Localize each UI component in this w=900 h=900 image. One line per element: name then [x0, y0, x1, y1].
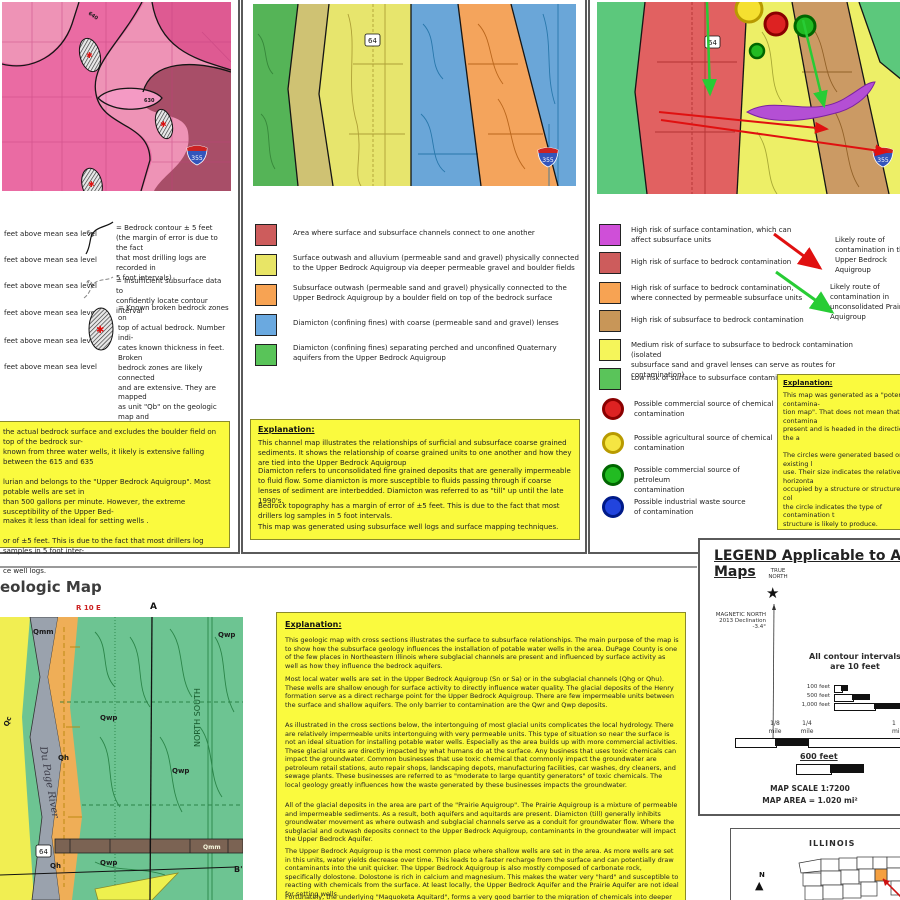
contour-interval-note: All contour intervals are 10 feet: [800, 652, 900, 673]
explanation-title: Explanation:: [258, 425, 315, 434]
map-area-label: MAP AREA = 1.020 mi²: [730, 796, 890, 805]
contamination-explanation-box: Explanation: This map was generated as a…: [777, 374, 900, 530]
bedrock-explanation-box: the actual bedrock surface and excludes …: [0, 421, 230, 548]
cross-section-marker-b: B': [234, 865, 243, 874]
legend-swatch: [599, 339, 621, 361]
north-arrow-icon: ▲: [755, 879, 763, 892]
map-label-road: NORTH SOUTH: [193, 688, 202, 747]
map-label-qwp: Qwp: [100, 714, 117, 722]
map-channel: 64 355: [253, 4, 576, 186]
map-label-qh: Qh: [50, 862, 61, 870]
legend-swatch: [255, 254, 277, 276]
svg-text:64: 64: [368, 37, 377, 45]
elevation-entry: feet above mean sea level: [4, 256, 97, 266]
explanation-paragraph: As illustrated in the cross sections bel…: [285, 721, 679, 790]
contour-label: 630: [144, 98, 155, 104]
route-64-shield: 64: [36, 845, 51, 857]
map-label-qwp: Qwp: [172, 767, 189, 775]
elevation-entry: feet above mean sea level: [4, 363, 97, 373]
panel-bedrock-topography: 640 630 ✱ ✱ ✱ 355 feet above mean sea le…: [0, 0, 240, 554]
explanation-title: Explanation:: [783, 379, 832, 387]
source-label: Possible commercial source of petroleum …: [634, 466, 774, 496]
panel-illinois-locator: ILLINOIS N ▲: [730, 828, 900, 900]
svg-text:64: 64: [39, 848, 48, 856]
explanation-paragraph: This map was generated using subsurface …: [258, 523, 573, 533]
legend-swatch: [255, 344, 277, 366]
explanation-paragraph: The Upper Bedrock Aquigroup is the most …: [285, 847, 679, 898]
route-64-shield: 64: [365, 34, 380, 46]
insufficient-data-symbol: 630: [82, 272, 114, 300]
map-label-qmm: Qmm: [203, 844, 221, 851]
bedrock-contour-symbol-label: = Bedrock contour ± 5 feet (the margin o…: [116, 224, 228, 284]
broken-bedrock-symbol: ✱: [86, 306, 116, 352]
map-label-qwp: Qwp: [100, 859, 117, 867]
source-circle: [602, 464, 624, 486]
green-arrow-label: Likely route of contamination in unconso…: [830, 283, 900, 323]
feet600-bar-black: [830, 764, 864, 773]
scalebar-1000ft-black: [874, 703, 900, 709]
scalebar-100ft-black: [841, 685, 848, 691]
legend-label: Subsurface outwash (permeable sand and g…: [293, 284, 583, 304]
map-contamination-risk: 64 355: [597, 2, 900, 194]
geologic-map-poster: 640 630 ✱ ✱ ✱ 355 feet above mean sea le…: [0, 0, 900, 900]
panel-channel-map: 64 355 Area where surface and subsurface…: [241, 0, 587, 554]
magnetic-north-label: MAGNETIC NORTH 2013 Declination -3.4°: [702, 612, 766, 630]
legend-label: Area where surface and subsurface channe…: [293, 229, 583, 239]
bedrock-explanation-text: the actual bedrock surface and excludes …: [3, 428, 225, 577]
channel-explanation-box: Explanation: This channel map illustrate…: [250, 419, 580, 540]
panel-contamination-map: 64 355 High risk of surface conta: [588, 0, 900, 554]
milebar-seg2: [775, 738, 808, 746]
legend-label: Surface outwash and alluvium (permeable …: [293, 254, 583, 274]
explanation-paragraph: Bedrock topography has a margin of error…: [258, 502, 573, 522]
geologic-explanation-box: Explanation: This geologic map with cros…: [276, 612, 686, 900]
explanation-paragraph: Most local water wells are set in the Up…: [285, 675, 679, 709]
feet600-label: 600 feet: [800, 752, 838, 761]
broken-bedrock-symbol-label: = Known broken bedrock zones on top of a…: [118, 304, 230, 433]
milebar-seg1: [735, 738, 777, 748]
legend-label: Diamicton (confining fines) with coarse …: [293, 319, 583, 329]
svg-text:✱: ✱: [88, 180, 95, 189]
source-circle: [602, 398, 624, 420]
bedrock-contour-symbol: 610: [82, 220, 114, 256]
svg-text:✱: ✱: [96, 325, 104, 336]
explanation-title: Explanation:: [285, 620, 342, 629]
map-scale-label: MAP SCALE 1:7200: [730, 784, 890, 793]
mile-label: 1/4: [794, 720, 820, 727]
svg-text:355: 355: [542, 157, 554, 164]
scalebar-label: 1,000 feet: [798, 702, 830, 708]
mile-unit: mi: [892, 728, 900, 735]
mile-unit: mile: [764, 728, 786, 735]
legend-swatch: [599, 252, 621, 274]
true-north-label: TRUE NORTH: [758, 568, 798, 580]
explanation-paragraph: Diamicton refers to unconsolidated fine …: [258, 467, 573, 507]
legend-label: Diamicton (confining fines) separating p…: [293, 344, 583, 364]
source-label: Possible industrial waste source of cont…: [634, 498, 774, 518]
legend-swatch: [255, 314, 277, 336]
legend-swatch: [599, 368, 621, 390]
true-north-star-icon: ★: [766, 584, 779, 602]
svg-text:✱: ✱: [160, 120, 167, 129]
range-label: R 10 E: [76, 604, 101, 612]
panel-legend-all-maps: LEGEND Applicable to All Maps TRUE NORTH…: [698, 538, 900, 816]
legend-panel-title: LEGEND Applicable to All Maps: [714, 548, 900, 580]
scalebar-label: 100 feet: [798, 684, 830, 690]
geologic-map-title: eologic Map: [0, 578, 102, 596]
svg-text:355: 355: [877, 157, 889, 164]
section-divider: [0, 566, 697, 568]
legend-swatch: [599, 282, 621, 304]
mile-label: 1/8: [762, 720, 788, 727]
scalebar-1000ft: [834, 703, 876, 711]
explanation-paragraph: All of the glacial deposits in the area …: [285, 801, 679, 844]
legend-swatch: [599, 310, 621, 332]
red-arrow-label: Likely route of contamination in th Uppe…: [835, 236, 900, 276]
scalebar-label: 500 feet: [798, 693, 830, 699]
legend-swatch: [255, 284, 277, 306]
source-label: Possible agricultural source of chemical…: [634, 434, 774, 454]
explanation-paragraph: This geologic map with cross sections il…: [285, 636, 679, 670]
mile-label: 1: [892, 720, 900, 727]
explanation-paragraph: Fortunately, the underlying "Maquoketa A…: [285, 893, 679, 900]
map-geologic: Qmm Qwp Qc Qwp Qwp Qh Qwp Qh Qmm Du Page…: [0, 617, 243, 900]
milebar-seg3: [808, 738, 900, 748]
legend-swatch: [255, 224, 277, 246]
source-circle: [602, 496, 624, 518]
source-circle: [602, 432, 624, 454]
map-label-qwp: Qwp: [218, 631, 235, 639]
dupage-county-highlight: [875, 869, 887, 881]
svg-text:355: 355: [191, 155, 203, 162]
scalebar-500ft-black: [852, 694, 870, 700]
map-label-qmm: Qmm: [33, 628, 54, 636]
illinois-county-map: [791, 855, 900, 900]
explanation-paragraph: This channel map illustrates the relatio…: [258, 439, 573, 469]
illinois-title: ILLINOIS: [809, 839, 855, 848]
svg-text:610: 610: [85, 229, 96, 239]
map-label-qh: Qh: [58, 754, 69, 762]
cross-section-marker-a: A: [150, 602, 157, 612]
feet600-bar-white: [796, 764, 832, 775]
svg-text:630: 630: [85, 279, 96, 289]
elevation-entry: feet above mean sea level: [4, 309, 97, 319]
mile-unit: mile: [794, 728, 820, 735]
map-bedrock-topography: 640 630 ✱ ✱ ✱ 355: [2, 2, 231, 191]
elevation-entry: feet above mean sea level: [4, 337, 97, 347]
svg-text:✱: ✱: [86, 51, 93, 60]
legend-swatch: [599, 224, 621, 246]
north-n-label: N: [759, 871, 765, 879]
scalebar-500ft: [834, 694, 854, 702]
source-label: Possible commercial source of chemical c…: [634, 400, 774, 420]
